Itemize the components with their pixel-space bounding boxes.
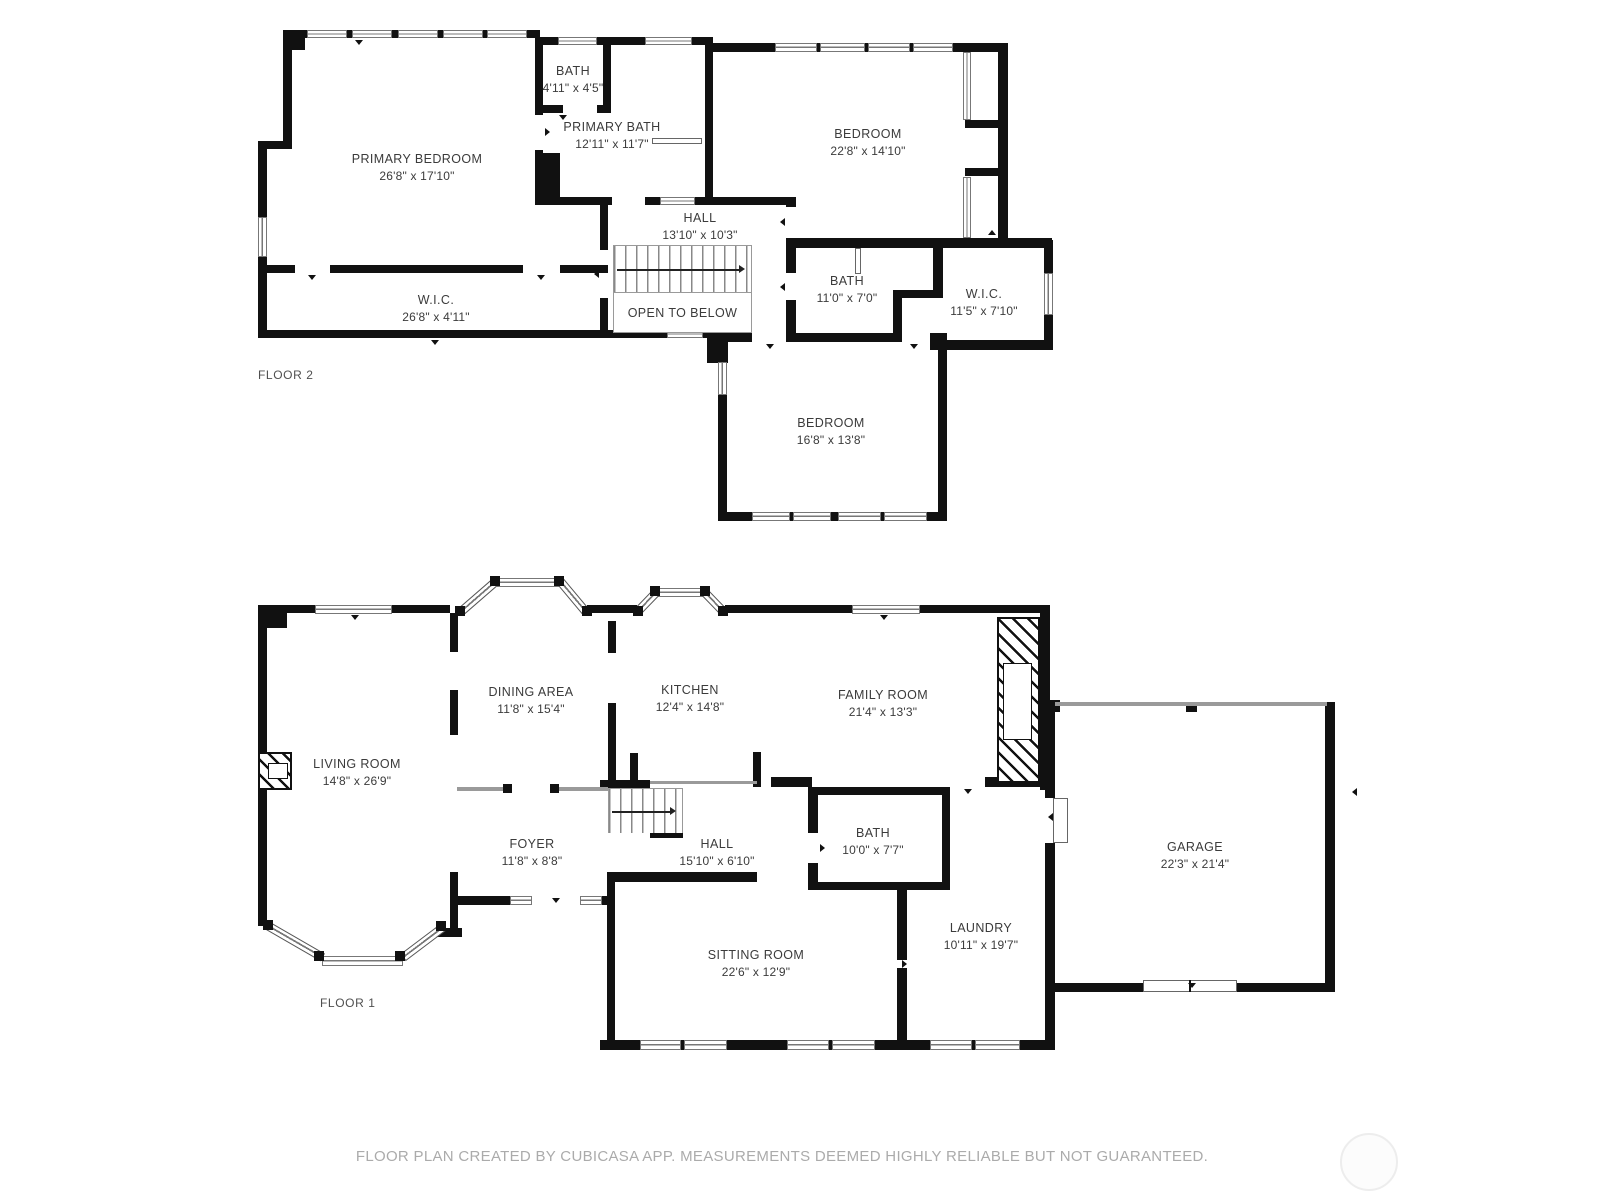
bay-corner [263,920,273,930]
fireplace-firebox [268,763,288,779]
room-label-family-room: FAMILY ROOM 21'4" x 13'3" [838,688,928,719]
wall [600,298,608,333]
door-tick [1048,813,1053,821]
wall [258,265,295,273]
window [645,37,692,45]
room-label-primary-bath: PRIMARY BATH 12'11" x 11'7" [563,120,660,151]
fireplace-firebox [1003,663,1032,740]
window [913,43,953,52]
window [752,512,790,521]
wall [608,621,616,653]
wall [965,168,1000,176]
floor2-label: FLOOR 2 [258,368,314,382]
door-tick [552,898,560,903]
door-tick [1352,788,1357,796]
room-label-bath-floor2: BATH 11'0" x 7'0" [817,274,878,305]
wall [258,330,613,338]
wall [808,787,818,833]
window [558,37,597,45]
window [352,30,392,38]
window [684,1040,727,1050]
room-label-hall-floor1: HALL 15'10" x 6'10" [679,837,754,868]
room-label-living-room: LIVING ROOM 14'8" x 26'9" [313,757,401,788]
wall [942,787,950,890]
garage-entry-door [1053,798,1068,843]
window [660,197,695,205]
wall [608,703,616,787]
wall [786,197,796,207]
room-label-garage: GARAGE 22'3" x 21'4" [1161,840,1229,871]
room-label-bedroom-upper: BEDROOM 22'8" x 14'10" [830,127,905,158]
wall [1045,992,1055,1050]
wall [1045,843,1055,992]
footer-disclaimer: FLOOR PLAN CREATED BY CUBICASA APP. MEAS… [356,1148,1208,1165]
window [775,43,817,52]
wall [450,613,458,652]
wall [897,968,907,1040]
bay-corner [633,606,643,616]
bay-corner [718,606,728,616]
bay-corner [490,576,500,586]
room-label-laundry: LAUNDRY 10'11" x 19'7" [944,921,1018,952]
door-tick [820,844,825,852]
door-tick [988,230,996,235]
wall [630,753,638,788]
wall [788,333,898,342]
wall [603,45,611,113]
wall [560,265,608,273]
window [640,1040,681,1050]
wall [535,153,560,201]
shower-divider [855,248,861,274]
half-wall-line [556,787,608,791]
wall [607,872,757,882]
wall [897,890,907,960]
wall [283,38,292,141]
door-tick [537,275,545,280]
wall [965,120,1000,128]
door-tick [766,344,774,349]
staircase-floor1 [608,788,683,833]
door-tick [1188,983,1196,988]
door-tick [902,960,907,968]
room-label-bath-floor1: BATH 10'0" x 7'7" [842,826,904,857]
wall [933,248,943,290]
wall [771,777,812,787]
bay-corner [554,576,564,586]
room-label-bedroom-lower: BEDROOM 16'8" x 13'8" [797,416,865,447]
bay-corner [582,606,592,616]
window [718,362,727,395]
wall [330,265,523,273]
sidelight-window [580,896,602,905]
bay-corner [455,606,465,616]
room-label-sitting-room: SITTING ROOM 22'6" x 12'9" [708,948,804,979]
stair-arrow [739,265,745,273]
wall [930,333,947,342]
room-label-hall-floor2: HALL 13'10" x 10'3" [662,211,737,242]
door-tick [594,270,599,278]
room-label-primary-bedroom: PRIMARY BEDROOM 26'8" x 17'10" [352,152,483,183]
window [787,1040,829,1050]
wall [725,605,852,613]
wall [602,896,615,905]
floorplan-canvas: OPEN TO BELOW PRIMARY BEDROOM 26'8" x 17… [0,0,1600,1200]
wall [452,896,510,905]
wall [1045,712,1055,798]
cubicasa-watermark [1340,1133,1398,1191]
wall [450,690,458,735]
window [258,217,267,257]
window [307,30,347,38]
wall [920,605,1047,613]
door-tick [910,344,918,349]
wall [597,105,611,113]
bay-window [322,956,403,966]
door-tick [780,283,785,291]
room-label-wic-right: W.I.C. 11'5" x 7'10" [950,287,1018,318]
wall [998,43,1008,248]
window [975,1040,1020,1050]
wall [587,605,637,613]
door-tick [780,218,785,226]
bay-window [657,588,705,597]
garage-top-line [1055,702,1327,706]
window [398,30,438,38]
bay-corner [436,921,446,931]
closet-door [963,52,971,120]
door-tick [355,40,363,45]
stair-top-line [650,781,757,784]
wall [535,197,612,205]
bay-corner [700,586,710,596]
bay-corner [314,951,324,961]
door-tick [880,615,888,620]
wall [938,342,947,521]
wall [786,238,1052,248]
closet-door [963,177,971,238]
staircase-floor2 [613,245,752,292]
stair-arrow [670,807,676,815]
wall [893,290,943,298]
wall [695,197,796,205]
door-tick [431,340,439,345]
window [852,605,920,614]
wall [1325,702,1335,992]
wall [808,787,950,795]
bay-corner [395,951,405,961]
open-to-below-label: OPEN TO BELOW [628,306,738,320]
floor1-label: FLOOR 1 [320,996,376,1010]
window [1044,273,1053,315]
wall [1237,983,1335,992]
door-tick [351,615,359,620]
sidelight-window [510,896,532,905]
window [487,30,527,38]
room-label-kitchen: KITCHEN 12'4" x 14'8" [656,683,724,714]
room-label-dining-area: DINING AREA 11'8" x 15'4" [489,685,574,716]
window [838,512,881,521]
wall [808,882,950,890]
half-wall-cap [550,784,559,793]
door-tick [559,115,567,120]
wall [705,37,713,205]
open-to-below: OPEN TO BELOW [613,292,752,333]
window [930,1040,972,1050]
stair-run-line [612,811,670,813]
room-label-wic-left: W.I.C. 26'8" x 4'11" [402,293,470,324]
door-tick [545,128,550,136]
window [832,1040,875,1050]
window [793,512,831,521]
door-tick [964,789,972,794]
room-label-foyer: FOYER 11'8" x 8'8" [502,837,563,868]
wall [600,205,608,250]
bay-window [497,578,560,587]
window [443,30,483,38]
room-label-bath-small: BATH 4'11" x 4'5" [543,64,604,95]
half-wall-cap [503,784,512,793]
wall [645,197,660,205]
window [868,43,910,52]
half-wall-line [457,787,509,791]
wall [1045,983,1143,992]
stair-run-line [617,269,739,271]
window [820,43,865,52]
door-tick [308,275,316,280]
bay-corner [650,586,660,596]
window [315,605,392,614]
window [884,512,927,521]
wall [930,340,1052,350]
wall [535,105,563,113]
